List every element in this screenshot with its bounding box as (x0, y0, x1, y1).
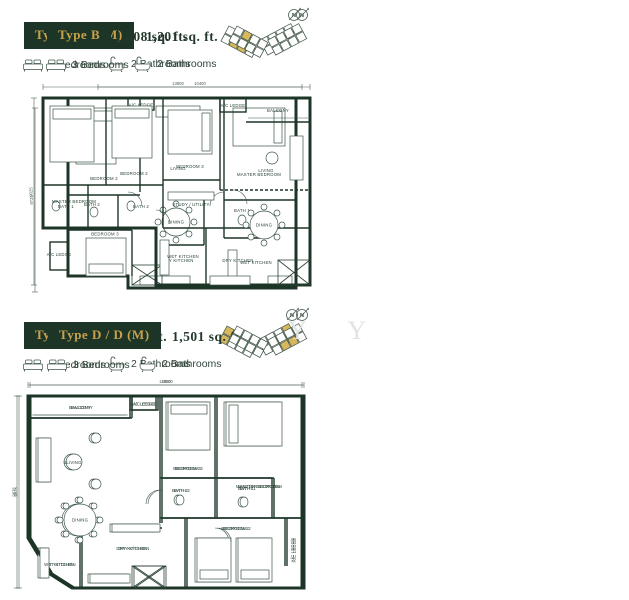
room-label: STUDY / UTILITY (172, 202, 209, 207)
dimension-side: 9025 (29, 98, 38, 285)
room-label: DINING (256, 223, 273, 228)
room-label: A/C LEDGE (133, 402, 158, 407)
room-label: BATH 2 (174, 488, 190, 493)
room-label: LIVING (258, 168, 274, 173)
type-label: Type B (58, 27, 100, 42)
bathrooms-label: 2 Bathrooms (162, 358, 222, 370)
bedrooms-label: 3 Bedrooms (73, 359, 130, 371)
room-label: BATH 2 (133, 204, 149, 209)
area-text: 1,408 sq. ft. (115, 29, 187, 45)
room-label: BEDROOM 3 (175, 466, 203, 471)
bedrooms-label: 3 Bedrooms (72, 59, 129, 71)
room-label: BATH 1 (240, 486, 256, 491)
keyplan-right-wing (268, 24, 307, 55)
bath-icon (138, 355, 157, 372)
keyplan-type-b: N (228, 4, 318, 66)
bathrooms-row: 2 Bathrooms (133, 55, 217, 72)
room-label: BALCONY (71, 405, 93, 410)
unit-panel-type-d: Type D / D (M) 1,501 sq. ft. 3 Bedrooms … (0, 300, 314, 600)
room-label: DINING (72, 518, 89, 523)
room-label: BALCONY (267, 108, 289, 113)
floorplan-type-b: 13800 9025 (28, 80, 314, 298)
type-label: Type D / D (M) (59, 327, 150, 342)
keyplan-left-wing (229, 26, 268, 57)
room-label: WET KITCHEN (167, 254, 199, 259)
svg-text:9025: 9025 (29, 187, 34, 197)
dimension-top: 13000 (30, 379, 304, 388)
svg-text:13000: 13000 (161, 379, 173, 384)
dimension-top: 13800 (43, 81, 310, 90)
bed-icon (46, 357, 68, 372)
svg-text:13800: 13800 (172, 81, 184, 86)
room-label: BEDROOM 2 (223, 526, 251, 531)
bedrooms-row: 3 Bedrooms (45, 57, 129, 72)
svg-text:9875: 9875 (14, 487, 19, 497)
type-badge: Type D / D (M) (48, 322, 161, 349)
room-label: WET KITCHEN (44, 562, 76, 567)
bath-icon (133, 55, 152, 72)
room-label: A/C LEDGE (292, 538, 297, 563)
furniture (38, 402, 282, 588)
room-label: BEDROOM 3 (176, 164, 204, 169)
room-label: DRY KITCHEN (118, 546, 149, 551)
bathrooms-row: 2 Bathrooms (138, 355, 222, 372)
room-label: BEDROOM 2 (120, 171, 148, 176)
room-label: BATH 1 (58, 204, 74, 209)
floorplan-type-d: 13000 9875 (12, 378, 314, 600)
watermark: Y Y (288, 316, 384, 346)
room-label: LIVING (66, 460, 82, 465)
bed-icon (45, 57, 67, 72)
floorplan-sheet: Type A / A (M) 1,201 sq. ft. 3 Bedrooms … (0, 0, 629, 600)
bedrooms-row: 3 Bedrooms (46, 357, 130, 372)
keyplan-left-wing (229, 326, 268, 357)
dimension-side: 9875 (14, 396, 23, 588)
unit-panel-type-b: Type B 1,408 sq. ft. 3 Bedrooms 2 Bathro… (0, 0, 314, 300)
room-label: A/C LEDGE (221, 103, 246, 108)
bathrooms-label: 2 Bathrooms (157, 58, 217, 70)
room-label: DRY KITCHEN (222, 258, 253, 263)
type-badge: Type B (47, 22, 111, 49)
